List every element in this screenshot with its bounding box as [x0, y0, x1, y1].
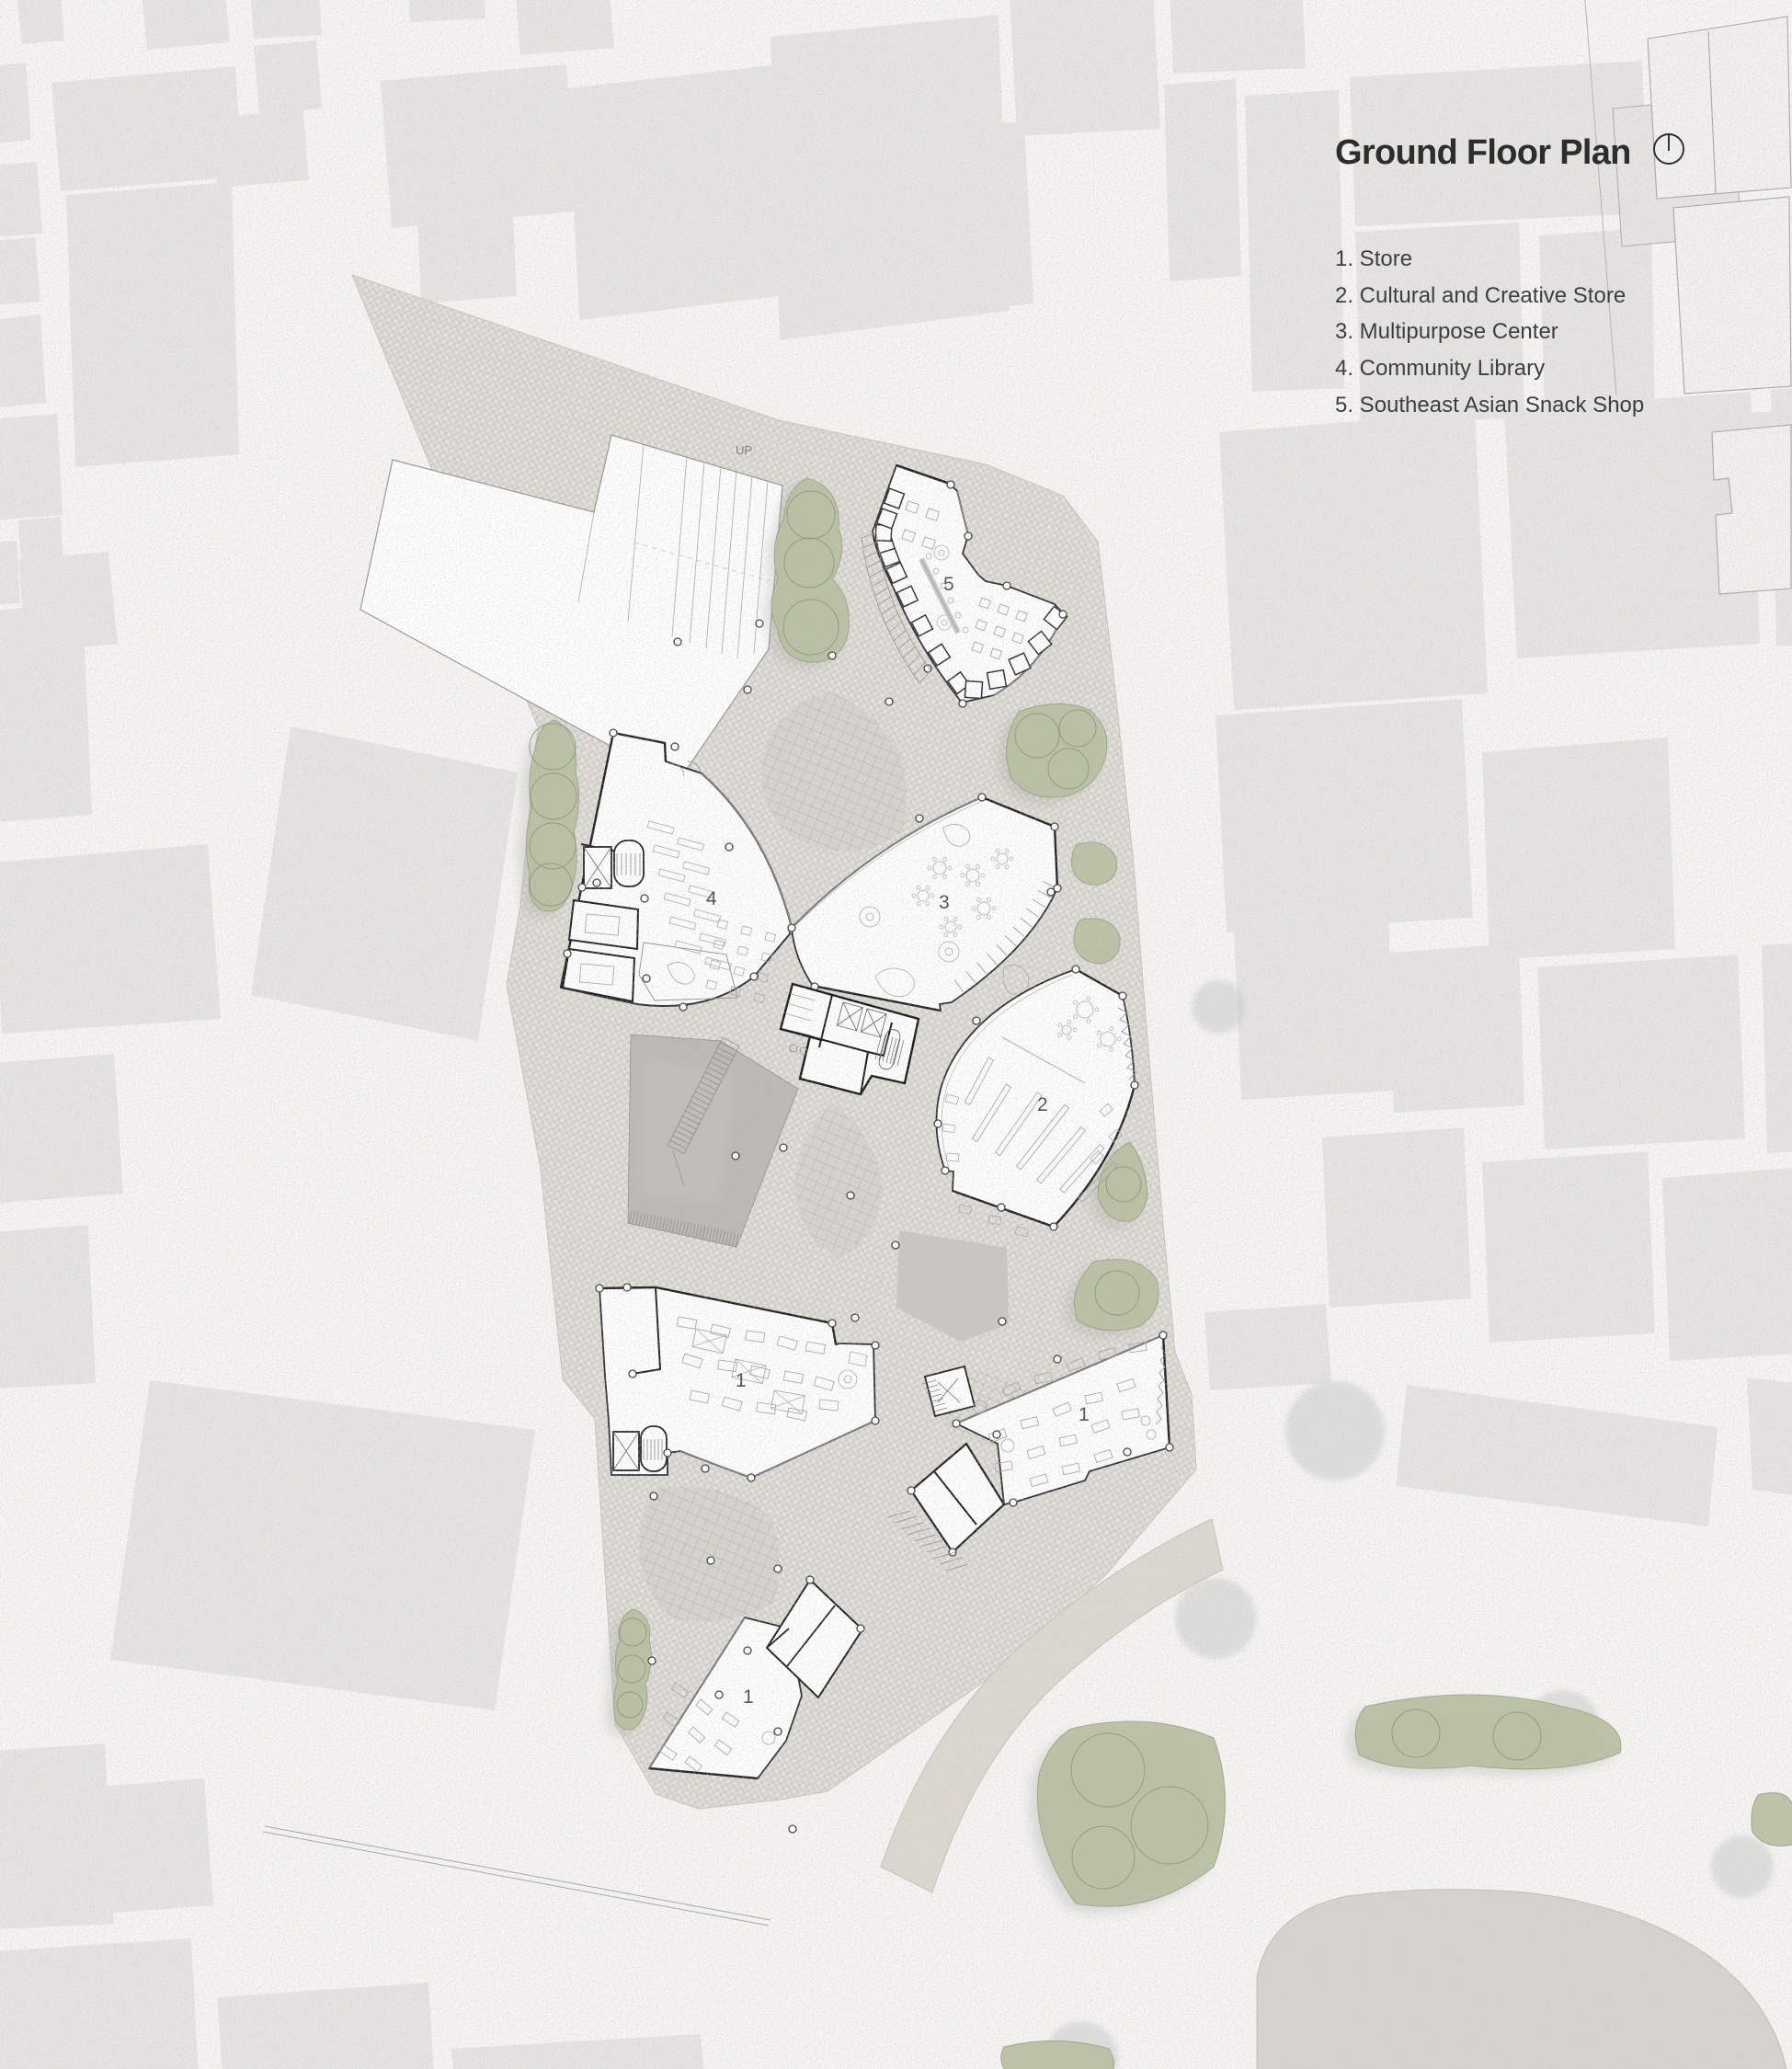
svg-text:3. Multipurpose Center: 3. Multipurpose Center [1335, 319, 1558, 344]
svg-text:Ground Floor Plan: Ground Floor Plan [1335, 133, 1631, 172]
svg-text:4. Community Library: 4. Community Library [1335, 356, 1545, 381]
svg-text:5. Southeast Asian Snack Shop: 5. Southeast Asian Snack Shop [1335, 393, 1644, 417]
svg-text:2. Cultural and Creative Store: 2. Cultural and Creative Store [1335, 283, 1626, 308]
svg-text:1. Store: 1. Store [1335, 246, 1412, 271]
